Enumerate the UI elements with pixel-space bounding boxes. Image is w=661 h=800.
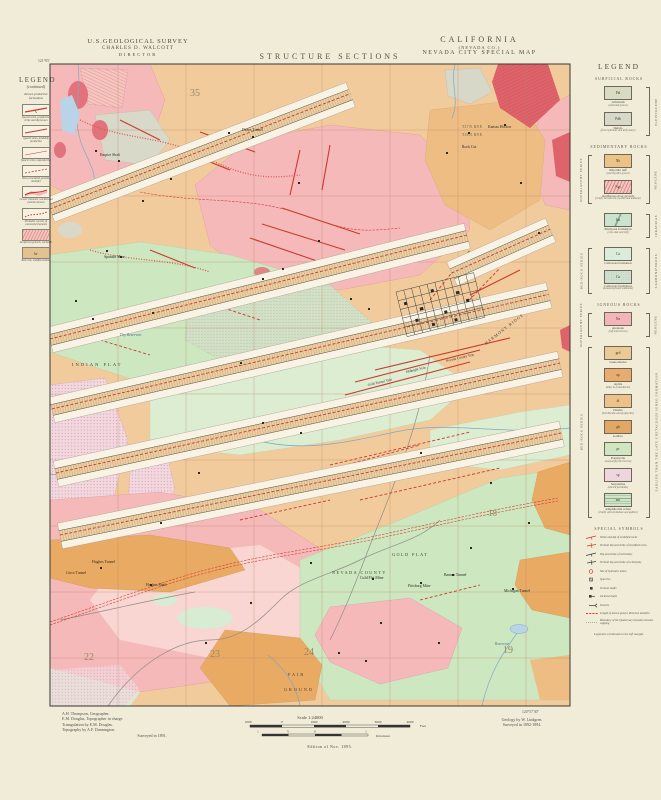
- boundary-icon: [584, 619, 600, 626]
- special-symbol-row: Dip and strike of schistosity: [580, 551, 658, 558]
- era-label-neocene2: NEOCENE: [651, 310, 661, 340]
- map-label: 35: [190, 88, 200, 99]
- scale-km-tick: 0: [314, 730, 316, 734]
- formation-subtext: (from hydraulic and drift mines): [592, 130, 644, 133]
- era-group-carboniferous: CaCalaveras formationCaCalaveras formati…: [580, 245, 658, 297]
- series-label: SUPERJACENT SERIES: [576, 310, 586, 340]
- map-label: T.17 N. R.9 E.: [462, 125, 483, 129]
- formation-ap: apAplite(dikes in granodiorite): [592, 368, 644, 390]
- left-legend-subtitle: (continued): [19, 84, 53, 89]
- formation-swatch: Jm: [604, 213, 632, 227]
- left-legend-item: Quartz veins, unproductive: [19, 147, 53, 162]
- era-label-carboniferous: CARBONIFEROUS: [651, 245, 661, 297]
- section-special-symbols: SPECIAL SYMBOLS: [580, 527, 658, 531]
- credits-right: Geology by W. Lindgren.Surveyed in 1892-…: [452, 717, 592, 728]
- formation-subtext: (metamorphosed sediments): [592, 288, 644, 291]
- ishaft-icon: [584, 593, 600, 600]
- reservoir-lake: [510, 625, 528, 634]
- bedrock-symbol: br: [22, 247, 50, 259]
- left-legend: LEGEND (continued) Known productive form…: [19, 76, 53, 265]
- igneous-group: NaAndesite(tuff and breccia)NEOCENESUPER…: [580, 310, 658, 521]
- formation-subtext: (and porphyrite breccia): [592, 461, 644, 464]
- formation-subtext: (chiefly beneath the rhyolite and andesi…: [592, 198, 644, 201]
- vein-dash-symbol: [22, 165, 50, 177]
- special-symbol-caption: Strike and dip of stratified rocks: [600, 536, 637, 539]
- special-symbol-row: Boundary of the Quaternary beneath volca…: [580, 619, 658, 626]
- map-label: Dry Reservoir: [119, 333, 142, 337]
- map-sheet: 352223241918INDIAN FLATGOLD FLATNEVADA C…: [0, 0, 661, 800]
- special-symbol-row: Tunnels: [580, 602, 658, 609]
- credit-line: Surveyed in 1891.: [62, 733, 242, 738]
- formation-subtext: (dikes in granodiorite): [592, 387, 644, 390]
- series-label: BED-ROCK SERIES: [576, 344, 586, 521]
- special-symbol-row: Strike and dip of stratified rocks: [580, 534, 658, 541]
- map-label: Kansas Hollow: [488, 125, 512, 129]
- scale-feet-tick: 1000: [245, 720, 252, 724]
- right-legend-title: LEGEND: [580, 62, 658, 71]
- series-label: BED-ROCK SERIES: [576, 245, 586, 297]
- special-symbol-row: Quarries: [580, 576, 658, 583]
- surficial-group: PalAlluvium(sand and gravel)PdbDebris(fr…: [580, 84, 658, 139]
- formation-pr: prPorphyrite(and porphyrite breccia): [592, 442, 644, 464]
- scale-feet-tick: 0: [281, 720, 283, 724]
- vstrike-icon: [584, 542, 600, 549]
- schist-icon: [584, 551, 600, 558]
- section-sedimentary-rocks: SEDIMENTARY ROCKS: [580, 145, 658, 149]
- era-group-neocene1: NhRhyolite tuff(and rhyolitic gravel)Ngr…: [580, 152, 658, 207]
- left-legend-item: Probable courses of concealed channels: [19, 208, 53, 226]
- formation-name: Granodiorite: [592, 361, 644, 365]
- tunnel-icon: [584, 602, 600, 609]
- era-bracket: [646, 87, 650, 136]
- map-label: GROUND: [284, 687, 314, 692]
- map-label: 22: [84, 652, 94, 663]
- formation-jm: JmMariposa formation(clay slate and tuff…: [592, 213, 644, 235]
- map-area: [45, 64, 570, 706]
- left-legend-item: Quartz veins, probably productive: [19, 125, 53, 143]
- map-label: Deans Tunnel: [242, 128, 263, 132]
- era-label-juratrias: JURATRIAS: [651, 211, 661, 241]
- map-label: Rock Cut: [462, 145, 477, 149]
- geologic-map: 352223241918INDIAN FLATGOLD FLATNEVADA C…: [0, 0, 661, 800]
- formation-ngr: NgrAuriferous river gravels(chiefly bene…: [592, 180, 644, 202]
- left-legend-caption: Gravel channels, worked and position kno…: [19, 198, 53, 204]
- formation-swatch: Pdb: [604, 112, 632, 126]
- map-label: 18: [488, 508, 498, 518]
- map-label: 23: [210, 649, 220, 660]
- right-legend: LEGEND SURFICIAL ROCKS PalAlluvium(sand …: [580, 62, 658, 636]
- left-legend-item: Quartz veins, productive, strike and dip…: [19, 104, 53, 122]
- formation-swatch: sp: [604, 468, 632, 482]
- map-label: T.16 N. R.9 E.: [462, 133, 483, 137]
- series-label: SUPERJACENT SERIES: [576, 152, 586, 207]
- special-symbol-caption: Site of hydraulic mines: [600, 570, 627, 573]
- formation-swatch: Ngr: [604, 180, 632, 194]
- special-symbol-row: Vertical dip and strike of stratified ro…: [580, 542, 658, 549]
- formation-subtext: (clay slate and tuff): [592, 232, 644, 235]
- section-igneous-rocks: IGNEOUS ROCKS: [580, 303, 658, 307]
- formation-swatch: ap: [604, 368, 632, 382]
- left-legend-title: LEGEND: [19, 76, 53, 84]
- quarry-icon: [584, 576, 600, 583]
- special-symbol-row: Vertical shafts: [580, 585, 658, 592]
- era-bracket: [646, 155, 650, 204]
- map-label: Banner Tunnel: [444, 573, 466, 577]
- agency-director-title: DIRECTOR: [58, 52, 218, 58]
- formation-pdb: PdbDebris(from hydraulic and drift mines…: [592, 112, 644, 134]
- left-legend-caption: Auriferous gravels, workable: [19, 241, 53, 244]
- special-symbol-caption: Inclined shafts: [600, 595, 617, 598]
- vschist-icon: [584, 559, 600, 566]
- era-group-pleistocene: PalAlluvium(sand and gravel)PdbDebris(fr…: [580, 84, 658, 139]
- map-label: Cerro Tunnel: [66, 571, 86, 575]
- scale-feet-unit: Feet: [420, 724, 426, 728]
- formation-grd: grdGranodiorite: [592, 346, 644, 365]
- era-bracket: [646, 313, 650, 337]
- credits-left: A.H. Thompson, Geographer.E.M. Douglas, …: [62, 711, 242, 738]
- edition-text: Edition of Nov. 1895.: [307, 744, 352, 749]
- era-label-pleistocene: PLEISTOCENE: [651, 84, 661, 139]
- channel-symbol: [22, 186, 50, 198]
- formation-subtext: (and rhyolitic gravel): [592, 173, 644, 176]
- era-group-juratrias: JmMariposa formation(clay slate and tuff…: [580, 211, 658, 241]
- formation-subtext: (altered peridotite): [592, 487, 644, 490]
- left-legend-caption: Probable courses of concealed channels: [19, 220, 53, 226]
- formation-name: Gabbro: [592, 435, 644, 439]
- era-group-cretaceous: grdGranodioriteapAplite(dikes in granodi…: [580, 344, 658, 521]
- left-legend-caption: Quartz veins, productive, strike and dip…: [19, 116, 53, 122]
- map-label: NEVADA COUNTY: [332, 570, 387, 575]
- scale-feet-tick: 3000: [375, 720, 382, 724]
- map-label: Michigan Tunnel: [504, 589, 530, 593]
- map-label: Hughes Shaft: [146, 583, 168, 587]
- formation-swatch: Nh: [604, 154, 632, 168]
- strike-icon: [584, 534, 600, 541]
- vein-solid-symbol: [22, 104, 50, 116]
- formation-subtext: (hornblendic and porphyritic): [592, 413, 644, 416]
- special-symbol-row: Length of known gravel, direction doubtf…: [580, 610, 658, 617]
- map-label: 19: [503, 645, 513, 656]
- map-label: GOLD FLAT: [392, 552, 428, 557]
- map-label: 121°05': [38, 59, 50, 63]
- formation-pal: PalAlluvium(sand and gravel): [592, 86, 644, 108]
- formation-sp: spSerpentine(altered peridotite): [592, 468, 644, 490]
- formation-ca: CaCalaveras formation: [592, 247, 644, 266]
- formation-swatch: grd: [604, 346, 632, 360]
- map-label: INDIAN FLAT: [72, 362, 122, 367]
- left-legend-item: Auriferous gravels, workable: [19, 229, 53, 244]
- sedimentary-group: NhRhyolite tuff(and rhyolitic gravel)Ngr…: [580, 152, 658, 297]
- formation-subtext: (chiefly altered diabase and gabbro): [592, 512, 644, 515]
- formation-am: amAmphibolite schist(chiefly altered dia…: [592, 493, 644, 515]
- agency-block: U.S.GEOLOGICAL SURVEY CHARLES D. WALCOTT…: [58, 38, 218, 58]
- vein-thin-symbol: [22, 147, 50, 159]
- formation-swatch: gb: [604, 420, 632, 434]
- special-symbol-row: Inclined shafts: [580, 593, 658, 600]
- series-bracket: [588, 155, 592, 204]
- formation-subtext: (sand and gravel): [592, 105, 644, 108]
- state-name: CALIFORNIA: [392, 35, 567, 45]
- left-legend-item: Gravel channels, worked and position kno…: [19, 186, 53, 204]
- left-legend-caption: Veins concealed, position doubtful: [19, 177, 53, 183]
- left-legend-caption: Bed rock, undifferentiated: [19, 259, 53, 262]
- left-legend-heading: Known productive formations: [19, 93, 53, 101]
- era-bracket: [646, 214, 650, 238]
- formation-nh: NhRhyolite tuff(and rhyolitic gravel): [592, 154, 644, 176]
- map-label: Spanish Mine: [104, 255, 125, 259]
- scale-km-tick: 1: [365, 730, 367, 734]
- scale-feet-tick: 1000: [311, 720, 318, 724]
- section-surficial-rocks: SURFICIAL ROCKS: [580, 77, 658, 81]
- map-label: Gold Flat Mine: [360, 576, 384, 580]
- channel-dash-symbol: [22, 208, 50, 220]
- map-label: Hughes Tunnel: [92, 560, 115, 564]
- series-bracket: [588, 313, 592, 337]
- hatch-symbol: [22, 229, 50, 241]
- hyd-icon: [584, 568, 600, 575]
- agency-name: U.S.GEOLOGICAL SURVEY: [58, 38, 218, 46]
- credit-line: Surveyed in 1892-1894.: [452, 722, 592, 727]
- right-legend-footnote: Legend is continued on the left margin.: [580, 632, 658, 636]
- formation-swatch: Ca: [604, 270, 632, 284]
- scale-feet-tick: 4000: [407, 720, 414, 724]
- formation-name: Calaveras formation: [592, 262, 644, 266]
- vein-solid2-symbol: [22, 125, 50, 137]
- scale-km-unit: Kilometer: [376, 734, 391, 738]
- map-label: FAIR: [288, 672, 305, 677]
- map-label: 120°57'30": [522, 710, 539, 714]
- special-symbol-caption: Dip and strike of schistosity: [600, 553, 632, 556]
- special-symbol-caption: Boundary of the Quaternary beneath volca…: [600, 619, 658, 625]
- special-symbol-caption: Quarries: [600, 578, 610, 581]
- scale-km-tick: 1: [257, 730, 259, 734]
- left-legend-caption: Quartz veins, unproductive: [19, 159, 53, 162]
- era-label-neocene1: NEOCENE: [651, 152, 661, 207]
- formation-di: diDiorite(hornblendic and porphyritic): [592, 394, 644, 416]
- era-group-neocene2: NaAndesite(tuff and breccia)NEOCENESUPER…: [580, 310, 658, 340]
- state-title-block: CALIFORNIA (NEVADA CO.) NEVADA CITY SPEC…: [392, 35, 567, 57]
- series-bracket: [588, 248, 592, 294]
- special-symbol-row: Vertical dip and strike of schistosity: [580, 559, 658, 566]
- special-symbols-list: Strike and dip of stratified rocksVertic…: [580, 534, 658, 626]
- era-label-cretaceous: EARLIER THAN THE LATE CRETACEOUS IGNEO F…: [651, 344, 661, 521]
- special-symbol-caption: Vertical shafts: [600, 587, 616, 590]
- special-symbol-row: Site of hydraulic mines: [580, 568, 658, 575]
- gravel-icon: [584, 610, 600, 617]
- special-symbol-caption: Length of known gravel, direction doubtf…: [600, 612, 650, 615]
- special-symbol-caption: Vertical dip and strike of schistosity: [600, 561, 641, 564]
- formation-swatch: Ca: [604, 247, 632, 261]
- formation-gb: gbGabbro: [592, 420, 644, 439]
- formation-swatch: Pal: [604, 86, 632, 100]
- map-label: Pittsburg Mine: [408, 584, 431, 588]
- special-symbol-caption: Tunnels: [600, 604, 609, 607]
- special-symbol-caption: Vertical dip and strike of stratified ro…: [600, 544, 647, 547]
- map-label: Reservoir: [494, 642, 510, 646]
- era-bracket: [646, 248, 650, 294]
- scale-km-tick: ½: [287, 730, 290, 734]
- formation-swatch: am: [604, 493, 632, 507]
- left-legend-items: Quartz veins, productive, strike and dip…: [19, 104, 53, 263]
- formation-swatch: pr: [604, 442, 632, 456]
- formation-swatch: Na: [604, 312, 632, 326]
- formation-subtext: (tuff and breccia): [592, 331, 644, 334]
- map-label: 24: [304, 647, 314, 658]
- formation-swatch: di: [604, 394, 632, 408]
- left-legend-item: Veins concealed, position doubtful: [19, 165, 53, 183]
- formation-ca: CaCalaveras formation(metamorphosed sedi…: [592, 270, 644, 292]
- series-bracket: [588, 347, 592, 518]
- scale-feet-tick: 2000: [343, 720, 350, 724]
- formation-na: NaAndesite(tuff and breccia): [592, 312, 644, 334]
- vshaft-icon: [584, 585, 600, 592]
- era-bracket: [646, 347, 650, 518]
- map-label: Empire Shaft: [100, 153, 121, 157]
- left-legend-item: brBed rock, undifferentiated: [19, 247, 53, 262]
- map-title: NEVADA CITY SPECIAL MAP: [392, 50, 567, 57]
- left-legend-caption: Quartz veins, probably productive: [19, 137, 53, 143]
